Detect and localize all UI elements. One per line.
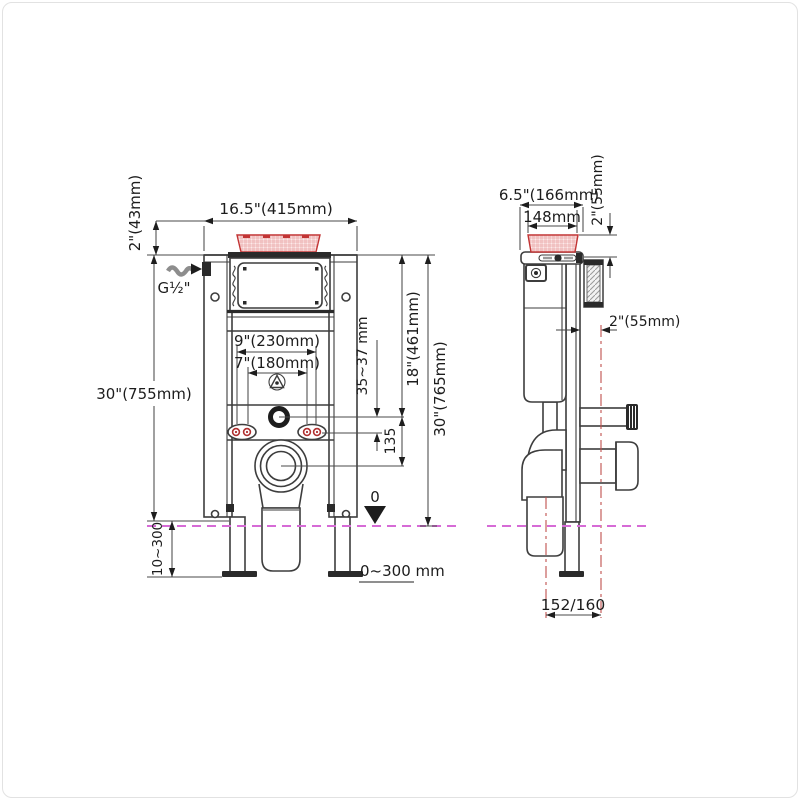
drain-pipe-front [259,484,303,571]
dim-bolt-230-label: 9"(230mm) [234,332,320,350]
cross-member [227,312,334,332]
datum-zero-marker: 0 [364,488,386,524]
flush-plate-opening [237,235,320,252]
rail-bolt-hole [342,293,350,301]
foot-base-plate [222,571,257,577]
leg-clamp-tab [226,504,234,512]
cistern-tank [230,258,330,312]
side-flush-plate-opening [528,235,578,252]
leg-clamp-tab [327,504,335,512]
datum-zero-label: 0 [370,488,380,506]
dim-foot-range: 10~300 [147,521,222,577]
dim-foot-range-label: 10~300 [150,522,166,576]
dim-plate-width: 148mm [523,208,581,233]
dim-depth-top-label: 6.5"(166mm) [499,186,599,204]
carrier-frame-dimension-diagram: G½" 0 16.5"(415mm) 2"(43mm) [0,0,800,800]
dim-plate-height: 2"(43mm) [126,175,204,255]
supply-pipe-side [580,404,638,430]
datum-triangle-icon [364,506,386,524]
dim-supply-range: 35~37 mm [355,316,380,451]
dim-height-765: 30"(765mm) [420,255,449,526]
dim-outlet-offset-label: 152/160 [541,596,605,614]
dim-wall-offset-label: 2"(55mm) [609,314,680,330]
inlet-label: G½" [157,279,190,297]
dim-plate-height-label: 2"(43mm) [126,175,144,251]
dim-supply-range-label: 35~37 mm [355,316,371,395]
side-tank [524,263,566,402]
foot-base-plate [328,571,363,577]
rail-bolt-hole [211,293,219,301]
dim-drop-135: 135 [383,417,405,466]
dim-width-top-label: 16.5"(415mm) [219,200,333,218]
drain-outlet-side [580,442,638,490]
dim-height-765-label: 30"(765mm) [431,341,449,437]
dim-drop-135-label: 135 [383,428,399,455]
lower-elbow [522,450,562,500]
side-view: 6.5"(166mm) 148mm 2"(55mm) 2"(55mm) [487,154,680,618]
dim-outlet-offset: 152/160 [541,596,605,618]
dim-plate-width-label: 148mm [523,208,581,226]
water-inlet: G½" [157,262,211,297]
inlet-port [202,262,211,276]
side-top-plate [521,252,583,264]
recycle-icon [269,374,285,390]
floor-range-label: 0~300 mm [360,562,445,580]
dim-height-461-label: 18"(461mm) [404,291,422,387]
leg-lock-hole [212,511,219,518]
dim-height-755-label: 30"(755mm) [96,385,192,403]
inlet-arrow-icon [168,268,193,275]
side-flush-pipe [522,402,566,556]
cistern-top-seal [228,252,331,258]
wall-bracket [584,260,603,307]
dim-plate-depth-label: 2"(55mm) [590,154,606,225]
dim-bolt-180-label: 7"(180mm) [234,354,320,372]
floor-range-note: 0~300 mm [359,562,445,582]
side-rail [566,258,580,522]
front-view: G½" 0 16.5"(415mm) 2"(43mm) [96,175,462,582]
